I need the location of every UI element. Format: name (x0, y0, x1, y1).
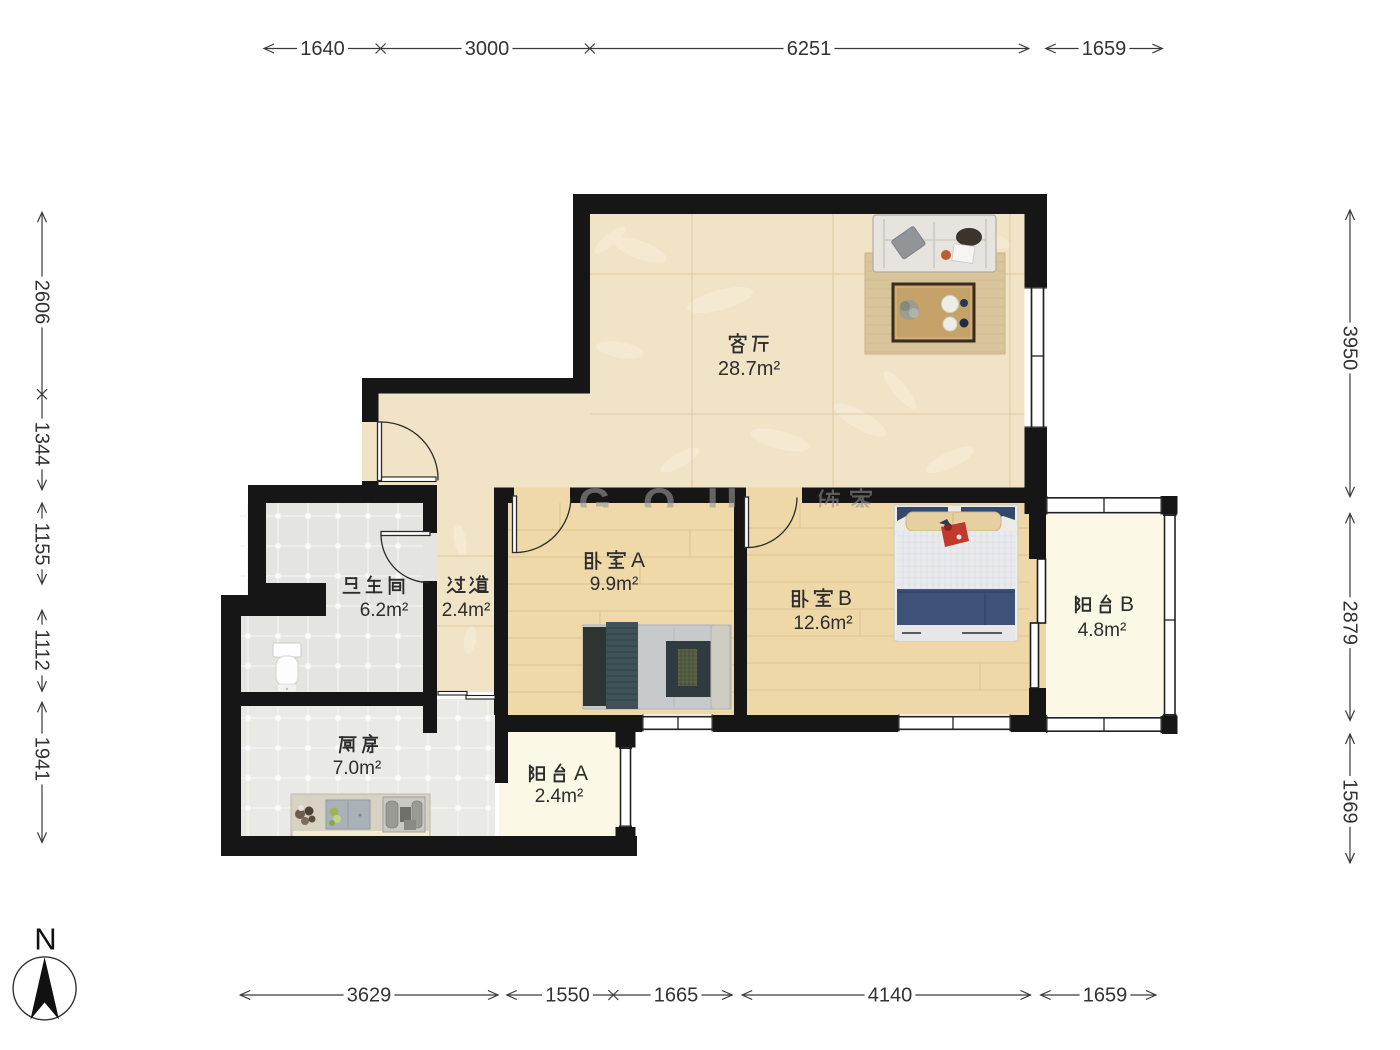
svg-text:1569: 1569 (1339, 779, 1361, 824)
svg-text:1659: 1659 (1083, 984, 1128, 1006)
svg-text:2.4m²: 2.4m² (535, 786, 584, 807)
svg-text:9.9m²: 9.9m² (590, 574, 639, 595)
svg-text:2879: 2879 (1339, 600, 1361, 645)
svg-text:A: A (574, 762, 588, 785)
svg-text:1941: 1941 (31, 737, 53, 782)
svg-text:2606: 2606 (31, 280, 53, 325)
svg-text:N: N (34, 922, 56, 957)
svg-text:3629: 3629 (347, 984, 392, 1006)
svg-text:12.6m²: 12.6m² (793, 613, 852, 634)
svg-text:1112: 1112 (31, 629, 53, 671)
svg-text:6251: 6251 (787, 38, 832, 60)
svg-text:2.4m²: 2.4m² (442, 600, 491, 621)
svg-text:B: B (838, 587, 852, 610)
svg-text:B: B (1120, 593, 1134, 616)
svg-text:28.7m²: 28.7m² (718, 358, 781, 380)
svg-text:4140: 4140 (868, 984, 913, 1006)
svg-text:1659: 1659 (1082, 38, 1127, 60)
svg-text:1665: 1665 (654, 984, 699, 1006)
svg-text:3000: 3000 (465, 38, 510, 60)
svg-text:7.0m²: 7.0m² (333, 758, 382, 779)
svg-text:4.8m²: 4.8m² (1078, 620, 1127, 641)
svg-text:1640: 1640 (300, 38, 345, 60)
svg-text:1155: 1155 (31, 522, 53, 565)
svg-text:1550: 1550 (545, 984, 590, 1006)
svg-text:1344: 1344 (31, 422, 53, 467)
svg-text:6.2m²: 6.2m² (360, 600, 409, 621)
svg-text:3950: 3950 (1339, 326, 1361, 371)
svg-text:A: A (631, 549, 645, 572)
